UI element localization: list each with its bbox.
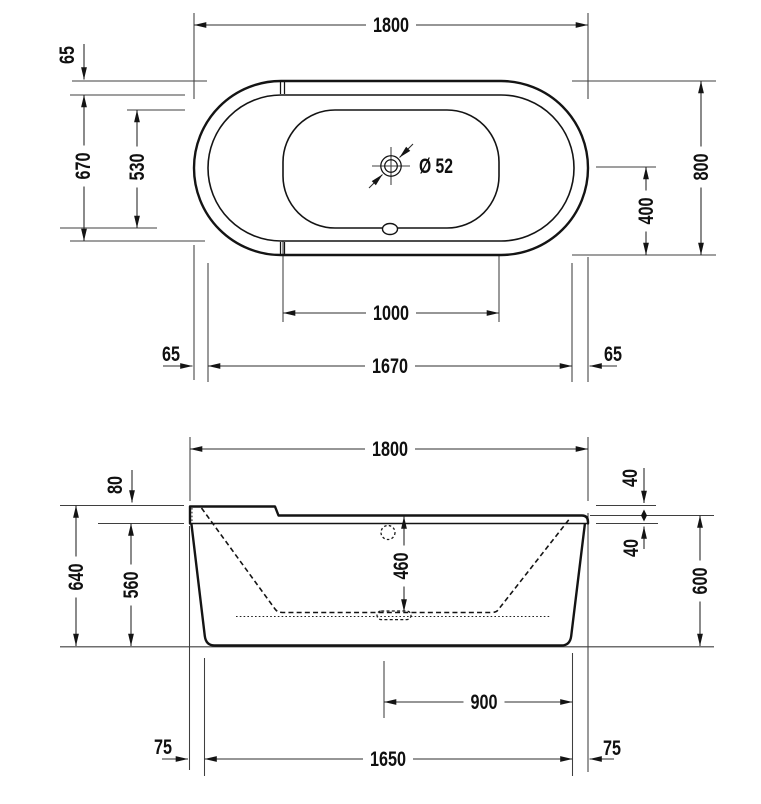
technical-drawing-canvas: 1800 65 670 530 (0, 0, 761, 804)
front-dim-overall-length: 1800 (190, 438, 588, 461)
plan-dim-rim-left-label: 65 (162, 343, 180, 366)
plan-dim-inner-width: 670 (72, 95, 95, 241)
plan-dim-basin-length-label: 1000 (373, 302, 409, 325)
front-dim-rim-thickness-label: 40 (620, 539, 643, 557)
plan-dim-overall-width: 800 (690, 81, 713, 255)
plan-dim-rim-right-label: 65 (604, 343, 622, 366)
plan-dim-rim-top: 65 (56, 44, 84, 80)
plan-extension-lines (60, 13, 716, 382)
front-dim-rim-underside-height-label: 560 (120, 572, 143, 599)
plan-dim-basin-width: 530 (126, 110, 149, 228)
plan-dim-drain-center-offset: 400 (635, 167, 658, 255)
plan-dim-inner-width-label: 670 (72, 153, 95, 180)
plan-dim-inner-length: 1670 (208, 355, 572, 378)
front-dim-rim-underside-height: 560 (120, 524, 143, 647)
front-dim-base-inset-right: 75 (590, 737, 622, 760)
plan-dim-basin-length: 1000 (283, 302, 499, 325)
plan-dim-overall-length: 1800 (194, 14, 588, 37)
drawing-page: 1800 65 670 530 (0, 0, 761, 804)
plan-dim-overall-width-label: 800 (690, 154, 713, 181)
front-view: 1800 80 640 560 (60, 437, 714, 776)
plan-dim-rim-right: 65 (590, 343, 623, 366)
front-dim-rim-step: 40 (619, 468, 647, 522)
plan-dim-basin-width-label: 530 (126, 154, 149, 181)
plan-dim-rim-top-label: 65 (56, 46, 79, 64)
front-dim-base-inset-left: 75 (154, 736, 188, 759)
front-dim-rim-step-label: 40 (619, 469, 642, 487)
front-dim-rim-thickness: 40 (620, 527, 644, 558)
front-dim-base-length: 1650 (205, 748, 573, 771)
front-dim-overall-length-label: 1800 (372, 438, 408, 461)
front-extension-lines (60, 437, 714, 776)
plan-view: 1800 65 670 530 (56, 13, 716, 382)
front-overflow-symbol (381, 526, 395, 540)
front-dim-base-length-label: 1650 (370, 748, 406, 771)
front-body-outline (192, 525, 585, 646)
front-dim-backrest-rise-label: 80 (104, 476, 127, 494)
front-rim-outline (190, 507, 588, 524)
front-dim-backrest-rise: 80 (104, 470, 132, 503)
plan-drain-symbol: Ø 52 (369, 144, 453, 188)
front-dim-base-inset-left-label: 75 (154, 736, 172, 759)
front-dim-base-inset-right-label: 75 (603, 737, 621, 760)
front-dim-backrest-height: 640 (65, 506, 88, 647)
front-dim-drain-offset-label: 900 (471, 691, 498, 714)
plan-dim-rim-left: 65 (162, 343, 193, 366)
plan-dim-overall-length-label: 1800 (373, 14, 409, 37)
front-dim-inner-depth-label: 460 (390, 553, 413, 580)
front-dim-inner-depth: 460 (390, 517, 413, 612)
plan-dim-drain-center-offset-label: 400 (635, 198, 658, 225)
front-dim-backrest-height-label: 640 (65, 564, 88, 591)
front-dim-drain-offset: 900 (384, 691, 573, 714)
front-dim-rim-height-label: 600 (689, 568, 712, 595)
front-dim-rim-height: 600 (689, 516, 712, 647)
plan-dim-inner-length-label: 1670 (372, 355, 408, 378)
plan-waste-outlet (383, 224, 398, 235)
front-dim-shared-arrow-dot (641, 510, 647, 522)
plan-drain-diameter-label: Ø 52 (419, 155, 453, 178)
